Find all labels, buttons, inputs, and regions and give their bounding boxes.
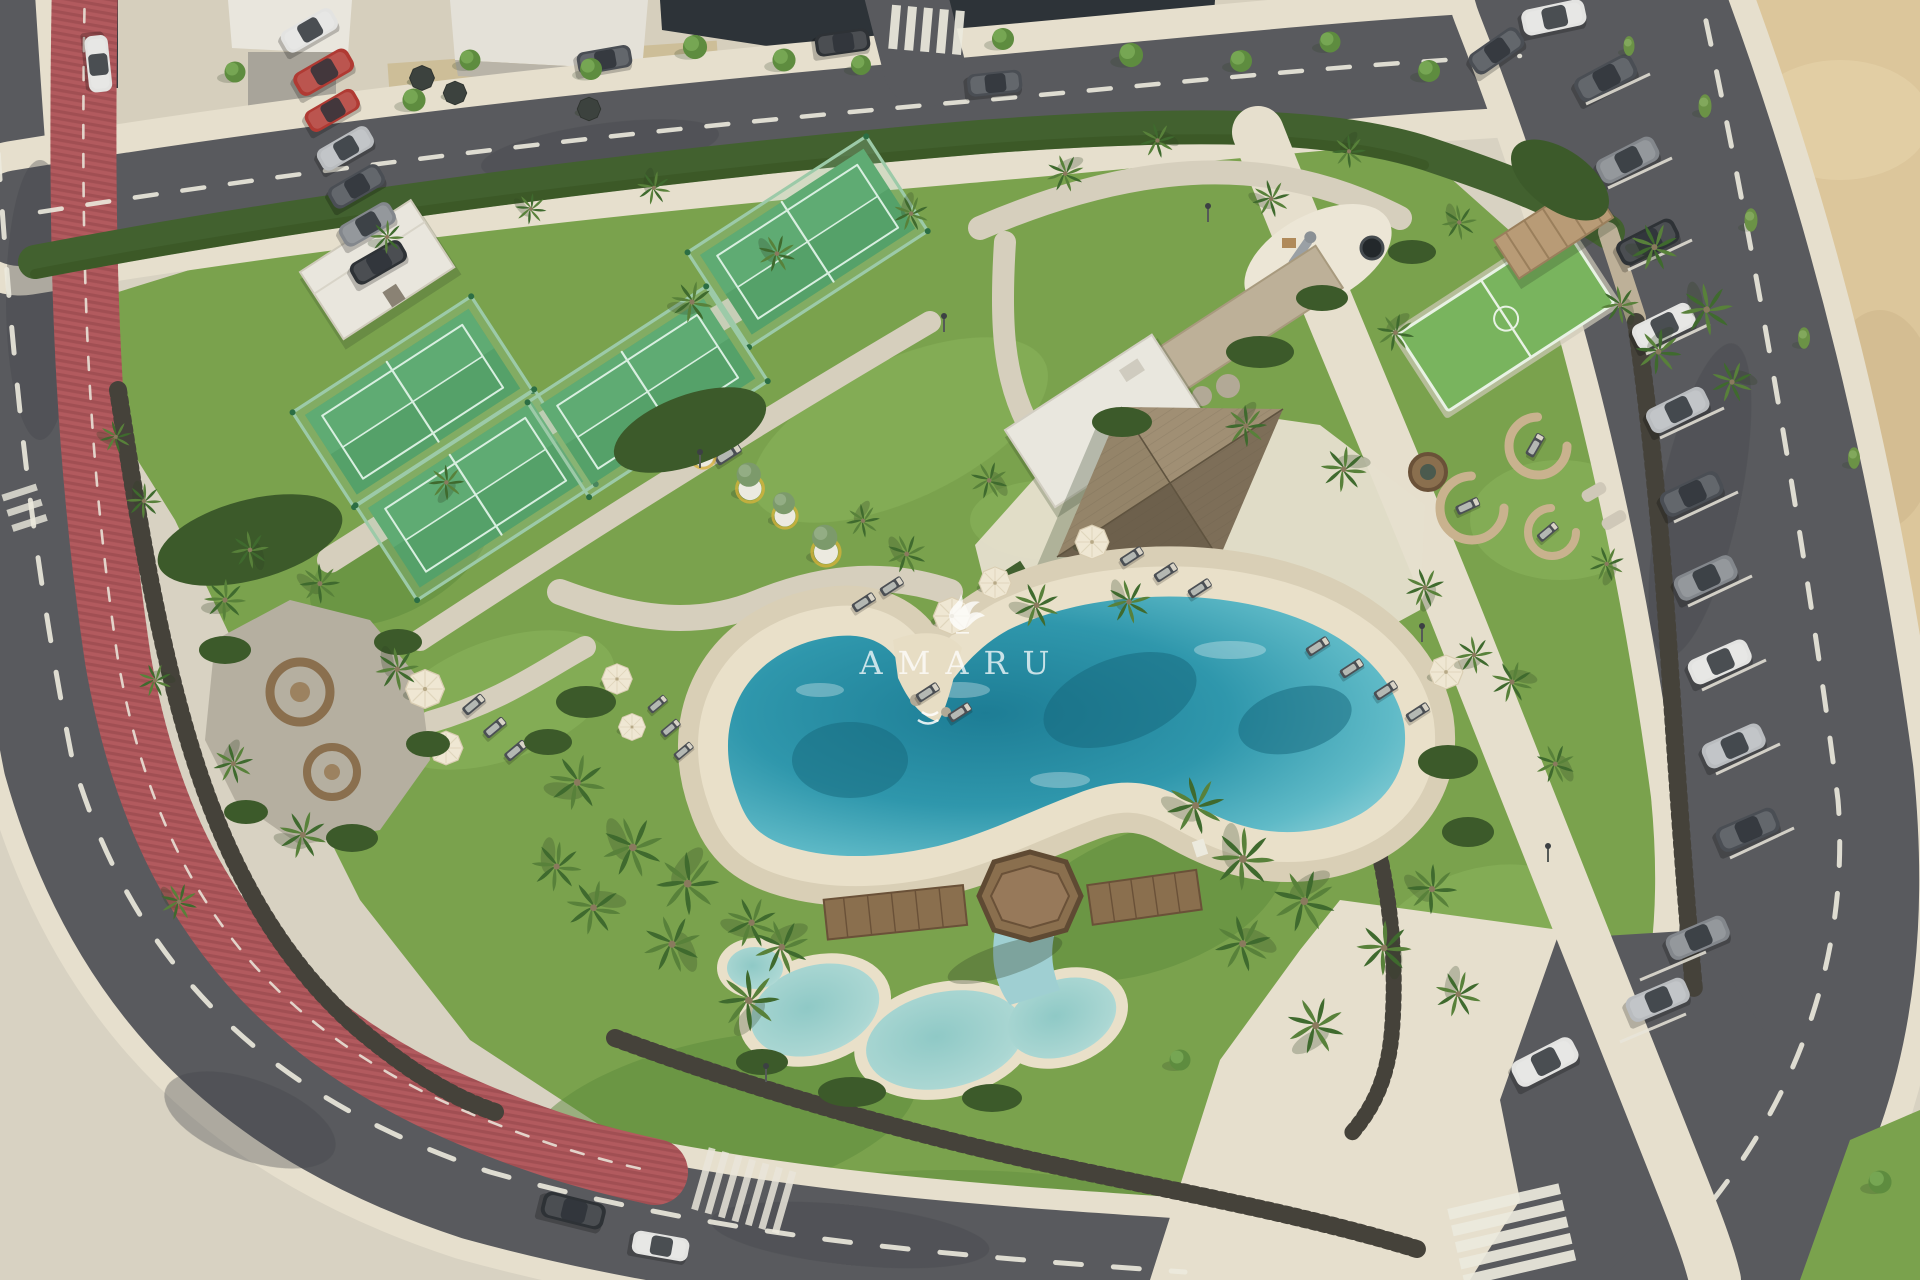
scene: AMARU (0, 0, 1920, 1280)
lagoon-pool (728, 596, 1405, 856)
gazebo-inner (991, 866, 1069, 928)
climber (1282, 238, 1296, 248)
boulder (1216, 374, 1240, 398)
watermark-text: AMARU (858, 644, 1064, 682)
wood-tub-center (1420, 464, 1436, 480)
trampoline (1361, 237, 1383, 259)
aerial-resort-render: AMARU (0, 0, 1920, 1280)
